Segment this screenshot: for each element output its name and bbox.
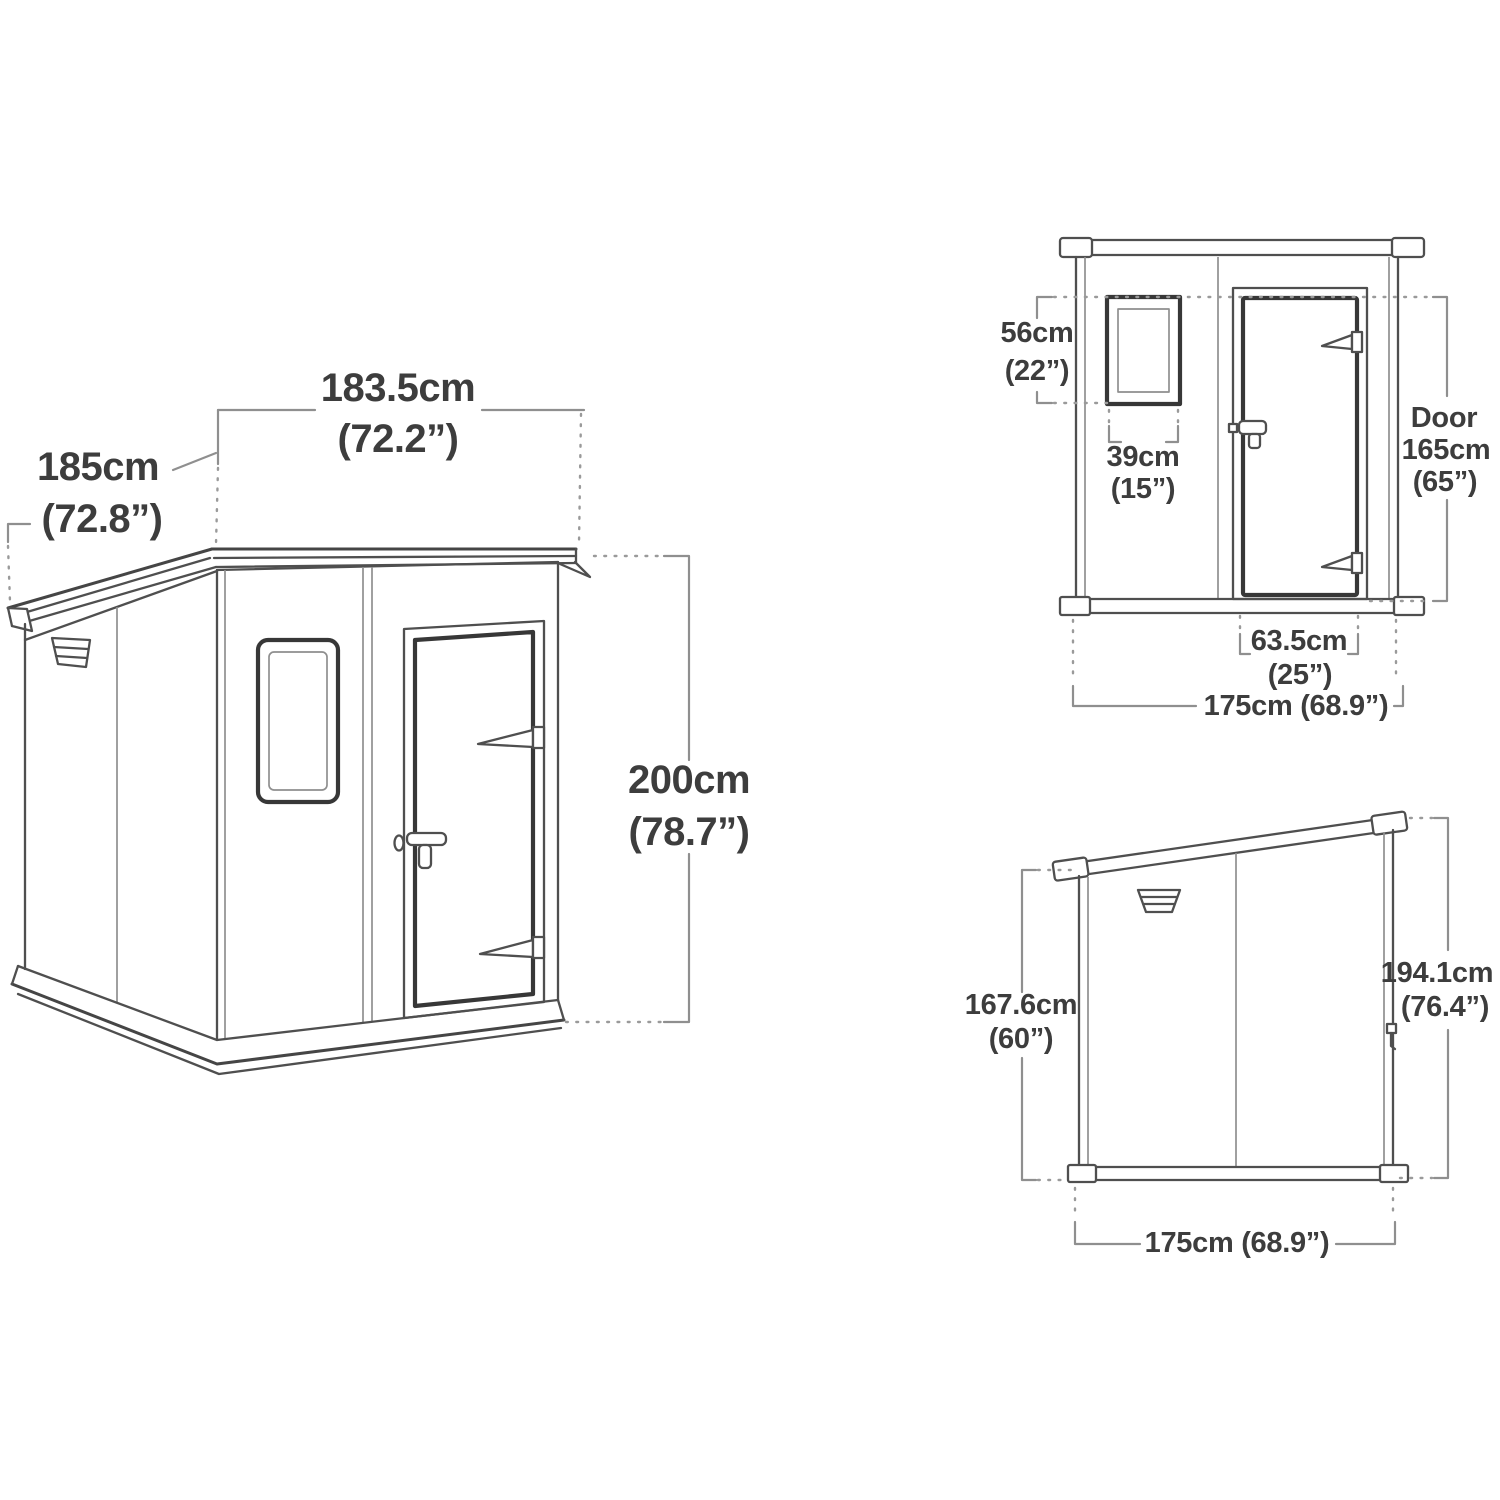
dim-main-width: 183.5cm (72.2”) xyxy=(216,366,584,544)
dim-main-height: 200cm (78.7”) xyxy=(566,556,750,1022)
front-roof-cap-left xyxy=(1060,238,1092,257)
label-door-height-cm: 165cm xyxy=(1402,434,1491,466)
front-elevation-view: 56cm (22”) 39cm (15”) Door 165cm (65”) xyxy=(1001,238,1491,722)
label-door-width-cm: 63.5cm xyxy=(1251,625,1348,657)
roof-eave-cap xyxy=(8,608,32,631)
front-foot-left xyxy=(1060,597,1090,615)
dim-door-width: 63.5cm (25”) xyxy=(1240,616,1358,691)
side-vent-icon xyxy=(1138,890,1180,912)
left-wall xyxy=(25,571,217,1003)
side-foot-left xyxy=(1068,1165,1096,1182)
front-structure xyxy=(1060,238,1424,615)
label-window-height-cm: 56cm xyxy=(1001,317,1074,349)
label-window-width-cm: 39cm xyxy=(1107,441,1180,473)
front-wall xyxy=(217,562,558,1040)
shed-dimensions-diagram: 183.5cm (72.2”) 185cm (72.8”) 200cm (78.… xyxy=(0,0,1500,1500)
front-roof-cap-right xyxy=(1392,238,1424,257)
label-main-height-in: (78.7”) xyxy=(629,810,750,854)
window xyxy=(258,640,338,802)
door xyxy=(395,621,545,1018)
front-door xyxy=(1229,288,1367,599)
dim-side-overall-depth: 175cm (68.9”) xyxy=(1075,1188,1395,1259)
label-main-height-cm: 200cm xyxy=(628,758,750,802)
isometric-view: 183.5cm (72.2”) 185cm (72.8”) 200cm (78.… xyxy=(8,366,750,1074)
dim-front-overall-width: 175cm (68.9”) xyxy=(1073,620,1403,722)
diagram-canvas: 183.5cm (72.2”) 185cm (72.8”) 200cm (78.… xyxy=(0,0,1500,1500)
label-main-depth-cm: 185cm xyxy=(37,445,159,489)
label-side-rear-height-in: (60”) xyxy=(989,1023,1054,1055)
dim-side-rear-height: 167.6cm (60”) xyxy=(965,870,1077,1180)
label-side-rear-height-cm: 167.6cm xyxy=(965,989,1077,1021)
dim-window-height: 56cm (22”) xyxy=(1001,297,1430,403)
front-window xyxy=(1107,297,1180,404)
side-foot-right xyxy=(1380,1165,1408,1182)
label-main-width-cm: 183.5cm xyxy=(321,366,475,410)
dim-door-height: Door 165cm (65”) xyxy=(1370,297,1490,601)
label-front-overall-width: 175cm (68.9”) xyxy=(1204,690,1389,722)
label-door-height-in: (65”) xyxy=(1413,466,1478,498)
vent-icon xyxy=(52,638,90,667)
label-window-width-in: (15”) xyxy=(1111,473,1176,505)
label-door-title: Door xyxy=(1411,402,1477,434)
label-side-front-height-cm: 194.1cm xyxy=(1381,957,1493,989)
label-door-width-in: (25”) xyxy=(1268,659,1333,691)
side-roof-bar xyxy=(1052,811,1407,881)
roof xyxy=(8,549,590,631)
label-window-height-in: (22”) xyxy=(1005,355,1070,387)
front-base-bar xyxy=(1066,599,1398,613)
label-main-width-in: (72.2”) xyxy=(338,417,459,461)
dim-window-width: 39cm (15”) xyxy=(1107,410,1180,505)
label-main-depth-in: (72.8”) xyxy=(42,497,163,541)
side-elevation-view: 167.6cm (60”) 194.1cm (76.4”) 175cm (68.… xyxy=(965,811,1493,1259)
side-latch-icon xyxy=(1387,1024,1396,1049)
front-roof-bar xyxy=(1066,240,1398,255)
front-foot-right xyxy=(1394,597,1424,615)
label-side-front-height-in: (76.4”) xyxy=(1401,991,1489,1023)
dim-side-front-height: 194.1cm (76.4”) xyxy=(1381,818,1493,1178)
side-base-bar xyxy=(1074,1167,1396,1180)
label-side-overall-depth: 175cm (68.9”) xyxy=(1145,1227,1330,1259)
side-structure xyxy=(1052,811,1408,1182)
